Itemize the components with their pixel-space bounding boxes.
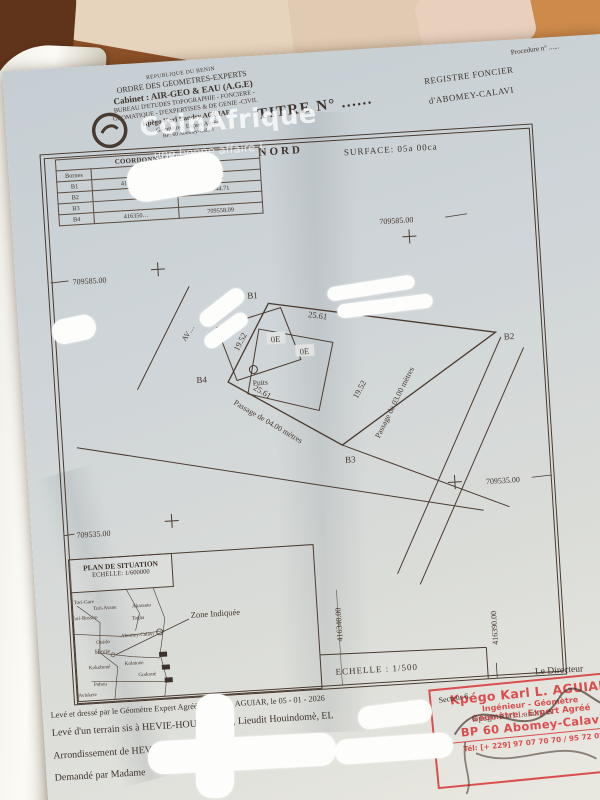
plan-frame: NORD SURFACE: 05a 00ca [39,123,567,705]
building-2-label: 0E [299,346,309,357]
grid-label-nw: 709585.00 [72,276,106,287]
situation-map-title-box: PLAN DE SITUATION ECHELLE: 1/600000 [68,553,174,593]
marker-b2: B2 [504,331,515,342]
building-1-label: 0E [271,334,281,345]
marker-b4: B4 [196,374,208,385]
grid-label-ne: 709585.00 [379,215,413,226]
situation-map-box: PLAN DE SITUATION ECHELLE: 1/600000 [68,544,323,704]
coords-cell: B4 [59,213,95,226]
photo-of-survey-document: REPUBLIQUE DU BENIN ORDRE DES GEOMETRES-… [0,0,600,800]
signature-scribble [431,661,600,800]
dim-bottom: 25.61 [252,382,274,400]
grid-label-se: 709535.00 [486,475,520,486]
avenue-label: AV… [180,323,197,343]
registry-block: Procedure n° ...... REGISTRE FONCIER d'A… [369,42,568,114]
well-symbol [249,365,257,373]
grid-label-east: 416390.00 [489,611,500,645]
road-right-label: Passage de 03.00 mètres [373,365,416,439]
dim-left: 19.52 [231,331,249,353]
grid-label-sw: 709535.00 [76,529,110,540]
plan-scale: ECHELLE : 1/500 [335,662,418,677]
road-bottom-label: Passage de 04.00 mètres [232,398,304,445]
requested-by-line: Demandé par Madame [54,767,146,784]
dimension-labels: 25.61 19.52 19.52 25.61 Passage de 04.00… [178,303,420,453]
dim-top: 25.61 [308,309,328,321]
grid-label-west: 416340.00 [334,607,345,641]
marker-b3: B3 [345,454,357,465]
marker-b1: B1 [247,290,258,301]
dim-right: 19.52 [350,378,368,400]
coinafrique-logo-icon [88,109,131,152]
